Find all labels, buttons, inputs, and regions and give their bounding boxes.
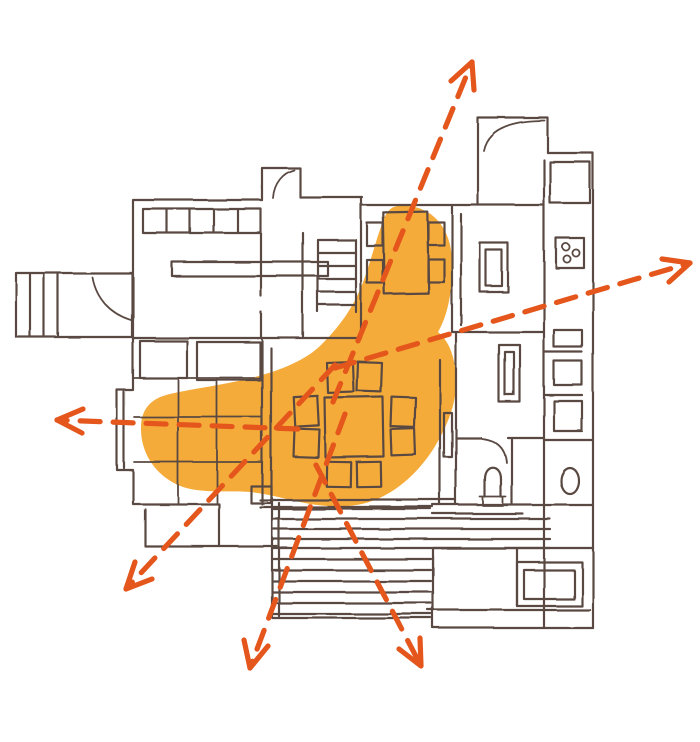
kitchen-cabinets: [554, 330, 582, 431]
entry-closet: [550, 162, 590, 203]
bathroom-walls: [433, 438, 544, 514]
porch-walls: [16, 273, 132, 337]
bathroom-door-arc: [482, 439, 507, 463]
top-door-bump: [262, 168, 300, 200]
porch-door-arc: [92, 277, 131, 320]
kitchen-walls: [544, 153, 593, 628]
toilet-icon: [480, 468, 506, 506]
floor-plan-svg: [0, 0, 700, 742]
entry-door-arc: [484, 121, 545, 151]
sink-icon: [561, 468, 579, 494]
stove-icon: [556, 238, 584, 268]
top-door-arc: [273, 170, 294, 198]
shelf-counter: [172, 262, 328, 276]
entry-walls: [478, 118, 548, 205]
window-box: [480, 243, 508, 292]
window-row: [143, 209, 261, 233]
living-room-boxes: [140, 341, 260, 380]
bathtub-icon: [517, 562, 582, 606]
arrow-down-head: [244, 640, 268, 668]
floor-plan-canvas: [0, 0, 700, 742]
utility-room-walls: [428, 548, 593, 628]
